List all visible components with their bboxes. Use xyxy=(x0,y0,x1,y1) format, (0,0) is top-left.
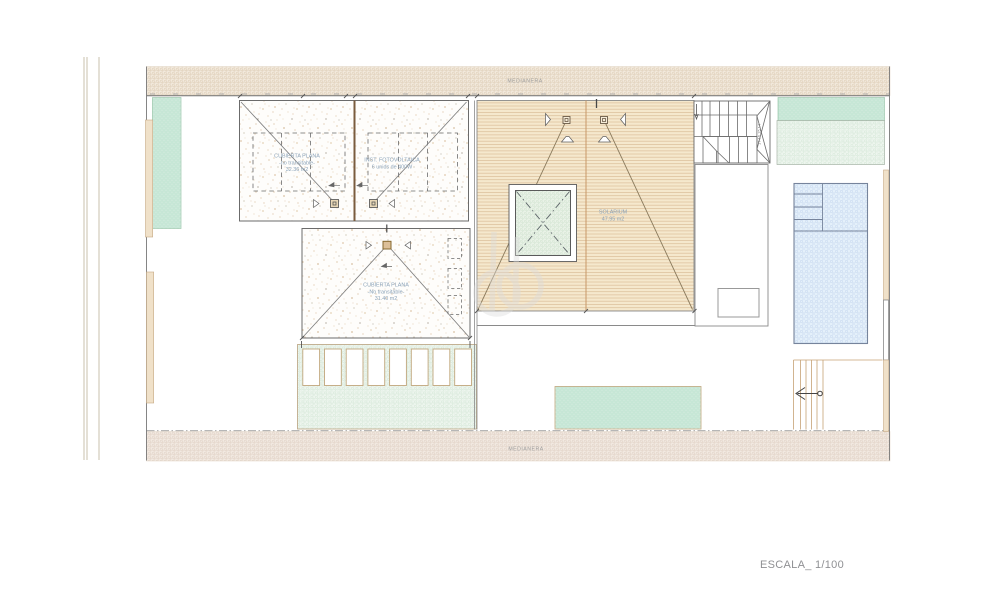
svg-text:INST. FOTOVOLTAICA: INST. FOTOVOLTAICA xyxy=(364,158,420,164)
svg-text:32.36 m2: 32.36 m2 xyxy=(286,167,308,173)
svg-text:SOLARIUM: SOLARIUM xyxy=(599,210,628,216)
svg-text:ESCALA_ 1/100: ESCALA_ 1/100 xyxy=(760,559,844,571)
svg-text:-no transitable-: -no transitable- xyxy=(279,161,315,167)
svg-text:CUBIERTA PLANA: CUBIERTA PLANA xyxy=(363,283,409,289)
svg-text:CUBIERTA PLANA: CUBIERTA PLANA xyxy=(274,154,320,160)
svg-text:-No transitable-: -No transitable- xyxy=(368,290,405,296)
svg-text:MEDIANERA: MEDIANERA xyxy=(508,447,543,453)
svg-text:MEDIANERA: MEDIANERA xyxy=(507,79,542,85)
svg-text:47.95 m2: 47.95 m2 xyxy=(602,217,624,223)
svg-text:6 unids de 400W: 6 unids de 400W xyxy=(372,165,413,171)
svg-text:31.40 m2: 31.40 m2 xyxy=(375,296,397,302)
svg-text:17 16 15 14: 17 16 15 14 xyxy=(757,123,762,145)
